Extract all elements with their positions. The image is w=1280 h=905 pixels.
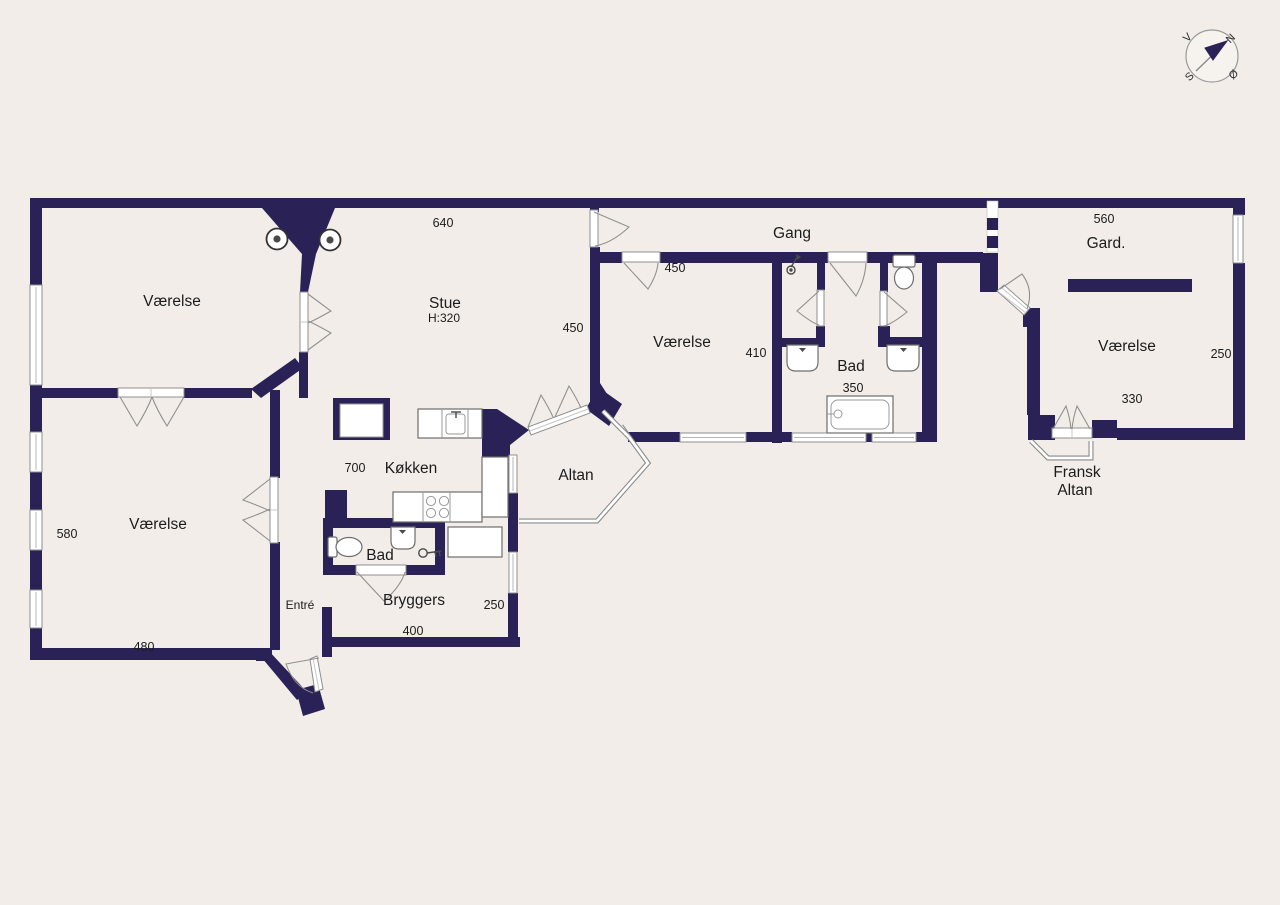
toilet-icon [893, 255, 915, 289]
room-label-vaerelse-mid: Værelse [653, 334, 711, 351]
dim-gard-width: 560 [1094, 212, 1115, 226]
door-swing [1072, 406, 1090, 429]
window [509, 455, 517, 493]
room-label-bad-mid: Bad [837, 358, 865, 375]
door-swing [120, 397, 152, 426]
hatch-niche [333, 398, 390, 440]
door-leaf [118, 388, 184, 397]
compass-rose: V N S Ø [1181, 30, 1241, 84]
door-leaf [270, 477, 278, 543]
door-leaf [880, 291, 887, 326]
door-leaves [118, 210, 1092, 692]
door-leaf [828, 252, 867, 262]
kitchen-counter [418, 409, 482, 438]
room-height-stue: H:320 [428, 311, 460, 325]
door-leaf [528, 405, 590, 435]
dim-vaerelse-e-width: 330 [1122, 392, 1143, 406]
door-swing [594, 212, 629, 246]
window [1233, 215, 1243, 263]
dim-bryggers-width: 400 [403, 624, 424, 638]
window [30, 285, 42, 385]
dim-vaerelse-e-depth: 250 [1211, 347, 1232, 361]
flue-icon [267, 229, 288, 250]
door-swing [243, 509, 270, 541]
sink-icon [887, 345, 919, 371]
door-swing [1053, 406, 1071, 429]
door-swing [308, 294, 331, 323]
room-label-fransk-altan-2: Altan [1057, 482, 1092, 499]
window [680, 433, 746, 442]
dim-stue-depth: 450 [563, 321, 584, 335]
fridge-icon [482, 457, 508, 517]
balcony-railings [519, 411, 1091, 521]
room-label-vaerelse-e: Værelse [1098, 338, 1156, 355]
room-label-vaerelse-sw: Værelse [129, 516, 187, 533]
bathtub-icon [827, 396, 893, 433]
room-label-stue: Stue [429, 295, 461, 312]
window [872, 433, 916, 442]
dim-bryggers-depth: 250 [484, 598, 505, 612]
toilet-icon [328, 537, 362, 557]
sink-icon [787, 345, 818, 371]
dashed-opening [987, 201, 998, 252]
window [30, 510, 42, 550]
room-label-vaerelse-nw: Værelse [143, 293, 201, 310]
door-leaf [356, 565, 406, 575]
dim-vaerelse-sw-width: 480 [134, 640, 155, 654]
door-leaf [622, 252, 660, 262]
dim-vaerelse-mid-depth: 410 [746, 346, 767, 360]
flue-icon [320, 230, 341, 251]
dim-koekken-width: 700 [345, 461, 366, 475]
door-swing [830, 263, 866, 296]
dim-vaerelse-mid-width: 450 [665, 261, 686, 275]
room-label-fransk-altan-1: Fransk [1053, 464, 1101, 481]
door-swing [308, 321, 331, 350]
door-leaf [590, 210, 598, 247]
door-swing [152, 397, 184, 426]
door-leaf [1052, 428, 1092, 438]
floor-plan: Værelse Stue H:320 Gang Værelse Bad Gard… [0, 0, 1280, 905]
washer-icon [448, 527, 502, 557]
dim-vaerelse-sw-depth: 580 [57, 527, 78, 541]
dim-stue-width: 640 [433, 216, 454, 230]
kitchen-counter [393, 492, 482, 522]
wardrobe-bar [1068, 279, 1192, 292]
room-label-bryggers: Bryggers [383, 592, 445, 609]
sink-icon [391, 527, 415, 549]
window [30, 432, 42, 472]
window [509, 552, 517, 593]
door-leaf [300, 292, 308, 352]
door-leaf [997, 285, 1030, 315]
room-label-gard: Gard. [1087, 235, 1126, 252]
room-label-bad-sw: Bad [366, 547, 394, 564]
floor-plan-page: Værelse Stue H:320 Gang Værelse Bad Gard… [0, 0, 1280, 905]
room-label-altan: Altan [558, 467, 593, 484]
dim-bad-mid-width: 350 [843, 381, 864, 395]
window [792, 433, 866, 442]
room-label-entre: Entré [286, 598, 315, 612]
door-swing [624, 263, 658, 289]
room-label-koekken: Køkken [385, 460, 438, 477]
door-swing [243, 479, 270, 511]
room-label-gang: Gang [773, 225, 811, 242]
window [30, 590, 42, 628]
door-swings [120, 212, 1090, 693]
door-swing [797, 291, 819, 325]
door-leaf [817, 290, 824, 326]
